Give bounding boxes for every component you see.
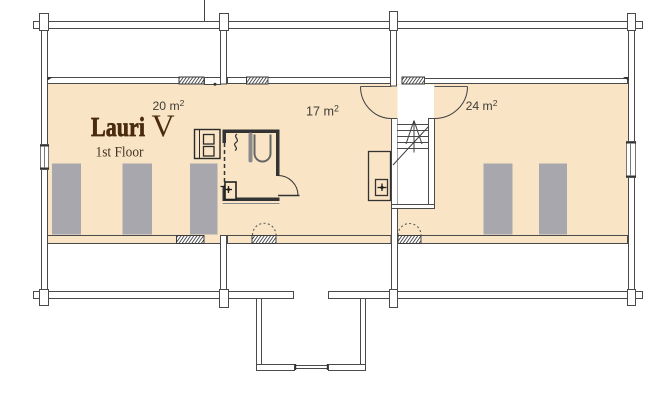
svg-text:Lauri: Lauri (91, 112, 145, 142)
svg-text:V: V (152, 108, 175, 144)
svg-text:1st Floor: 1st Floor (96, 145, 144, 161)
